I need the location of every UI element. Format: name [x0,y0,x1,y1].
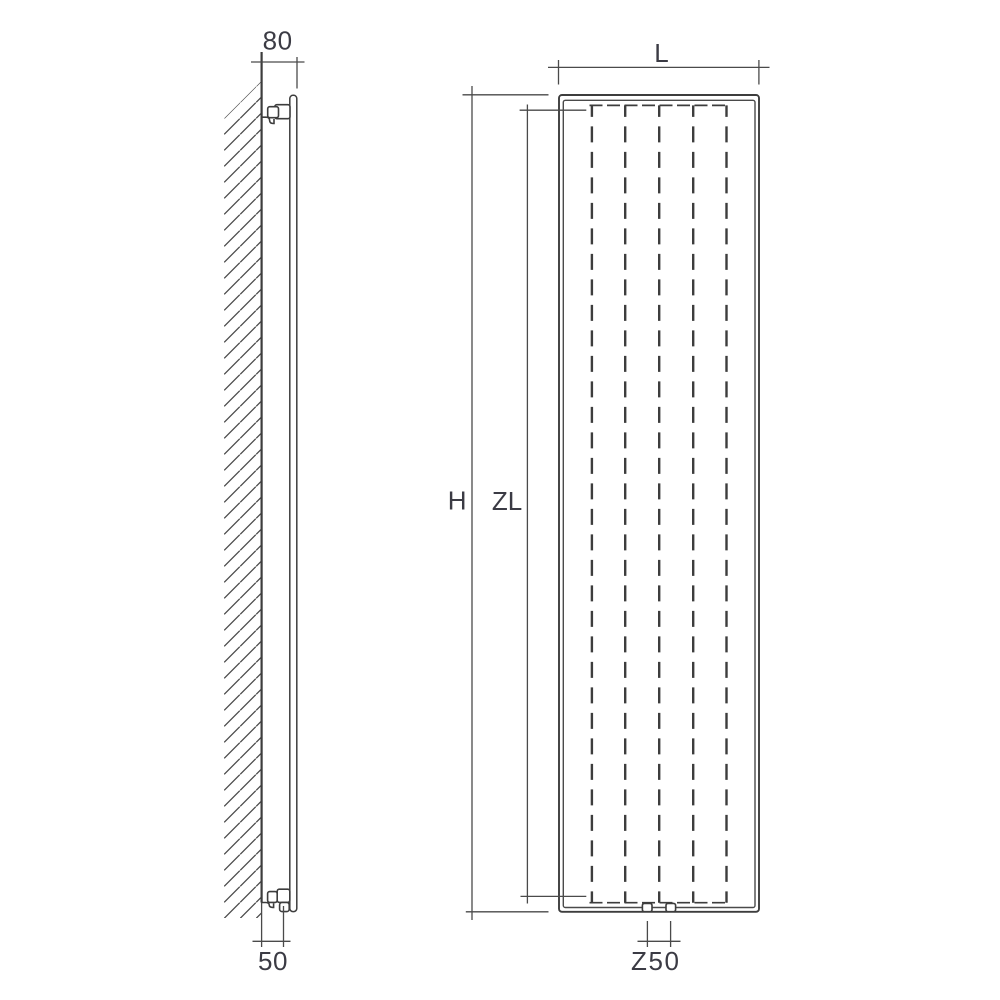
svg-text:80: 80 [263,25,293,55]
svg-text:H: H [448,485,467,515]
svg-text:Z50: Z50 [631,946,681,976]
svg-text:ZL: ZL [492,486,522,516]
svg-text:50: 50 [258,946,288,976]
svg-text:L: L [654,38,668,68]
